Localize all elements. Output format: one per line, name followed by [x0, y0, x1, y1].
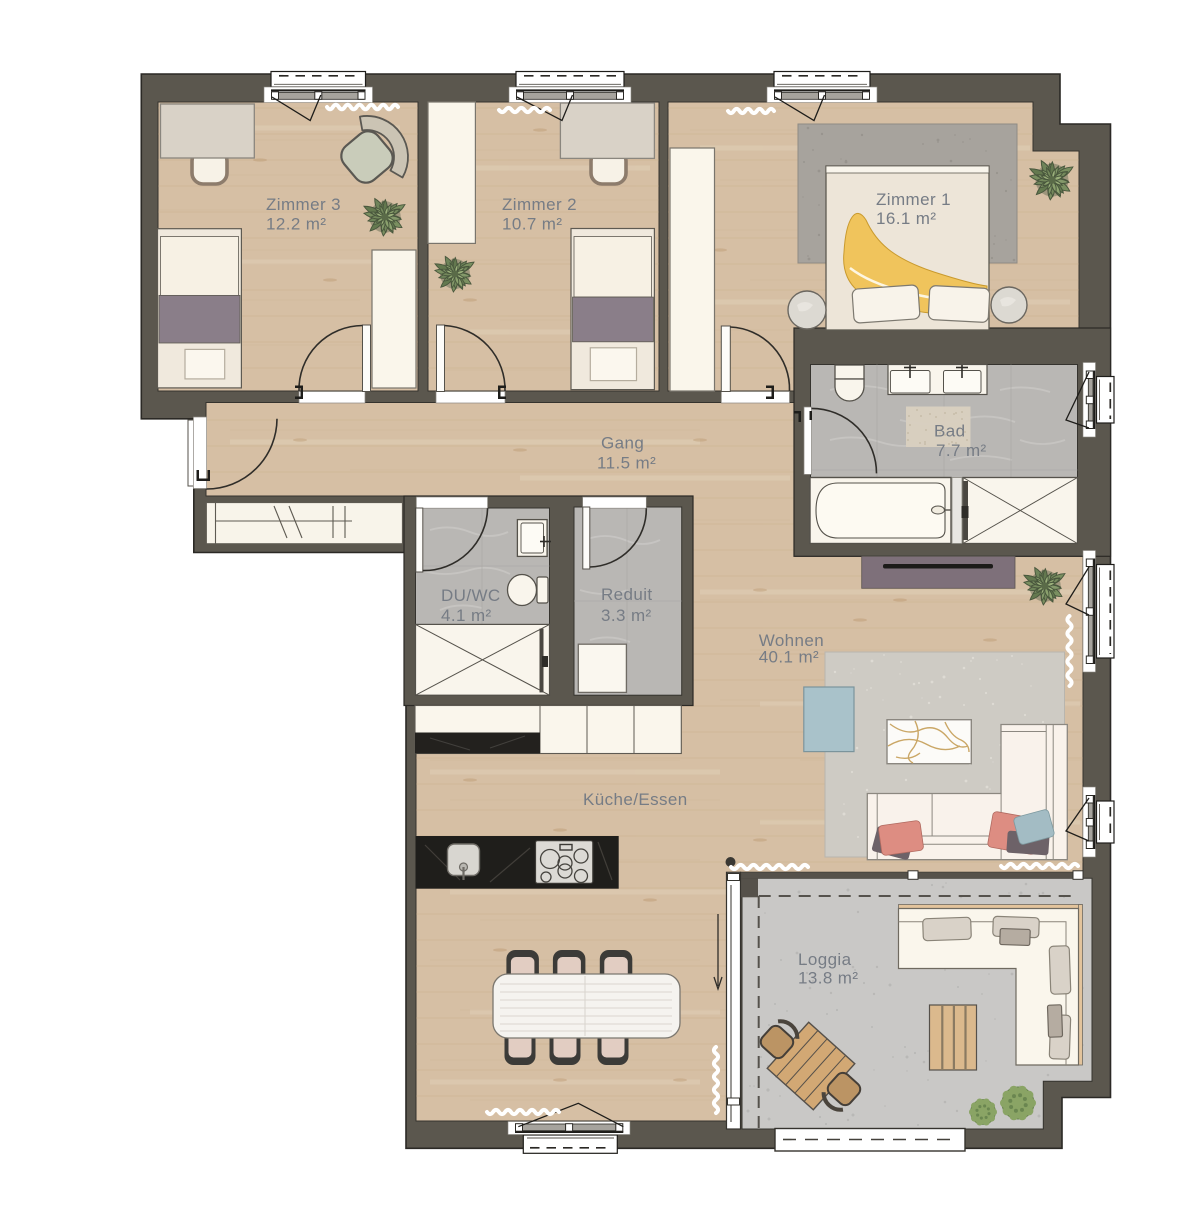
svg-text:Zimmer 1: Zimmer 1	[876, 190, 951, 209]
svg-text:12.2 m²: 12.2 m²	[266, 215, 326, 234]
svg-text:Bad: Bad	[934, 422, 965, 441]
svg-text:11.5 m²: 11.5 m²	[597, 454, 656, 473]
svg-text:10.7 m²: 10.7 m²	[502, 215, 562, 234]
svg-text:DU/WC: DU/WC	[441, 586, 501, 605]
svg-text:7.7 m²: 7.7 m²	[936, 441, 987, 460]
svg-text:Gang: Gang	[601, 434, 644, 453]
svg-text:13.8 m²: 13.8 m²	[798, 969, 858, 988]
svg-text:Küche/Essen: Küche/Essen	[583, 790, 688, 809]
svg-text:4.1 m²: 4.1 m²	[441, 606, 492, 625]
svg-text:Reduit: Reduit	[601, 585, 653, 604]
svg-text:16.1 m²: 16.1 m²	[876, 209, 936, 228]
svg-text:Zimmer 3: Zimmer 3	[266, 195, 341, 214]
svg-text:Zimmer 2: Zimmer 2	[502, 195, 577, 214]
svg-text:40.1 m²: 40.1 m²	[759, 648, 819, 667]
svg-text:3.3 m²: 3.3 m²	[601, 606, 652, 625]
svg-text:Loggia: Loggia	[798, 950, 852, 969]
